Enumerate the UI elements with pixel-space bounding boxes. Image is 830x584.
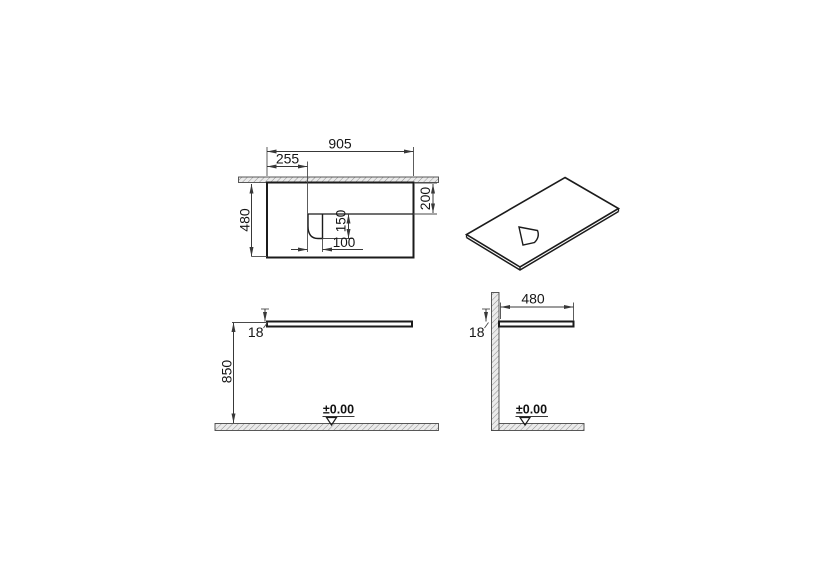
- isometric-view: [467, 178, 619, 271]
- dim-label-100: 100: [333, 235, 356, 250]
- datum-marker-right: ±0.00: [516, 403, 549, 426]
- section-wall-hatch: [492, 293, 500, 431]
- iso-panel-top-face: [467, 178, 619, 268]
- drawing-svg: 905 255 480 200 150: [0, 0, 830, 584]
- section-floor-hatch: [492, 424, 585, 431]
- elevation-view: 18 850 ±0.00: [215, 309, 439, 431]
- dim-panel-depth: 480: [501, 291, 574, 322]
- dim-panel-thickness-right: 18: [469, 309, 490, 340]
- datum-label-right: ±0.00: [516, 403, 547, 417]
- dim-label-18-left: 18: [248, 324, 264, 340]
- elevation-panel: [267, 322, 412, 327]
- dim-label-480-front: 480: [237, 208, 253, 232]
- elevation-floor-hatch: [215, 424, 439, 431]
- dim-label-480-depth: 480: [521, 291, 545, 307]
- front-view: 905 255 480 200 150: [237, 136, 439, 258]
- iso-cutout-hole: [519, 227, 538, 245]
- dim-panel-thickness-left: 18: [248, 309, 269, 340]
- dim-label-150: 150: [334, 210, 349, 233]
- datum-label-left: ±0.00: [323, 403, 354, 417]
- dim-label-200: 200: [417, 187, 433, 211]
- section-panel: [499, 322, 574, 327]
- technical-drawing-canvas: 905 255 480 200 150: [0, 0, 830, 584]
- datum-marker-left: ±0.00: [323, 403, 355, 426]
- dim-label-255: 255: [276, 151, 300, 167]
- dim-label-18-right: 18: [469, 324, 485, 340]
- dim-recess-depth: 200: [413, 183, 437, 214]
- dim-label-850: 850: [219, 360, 235, 384]
- dim-label-905: 905: [328, 136, 352, 152]
- section-view: 480 18 ±0.00: [469, 291, 584, 431]
- dim-front-height: 480: [237, 184, 268, 257]
- iso-panel-thickness-edge: [467, 212, 619, 271]
